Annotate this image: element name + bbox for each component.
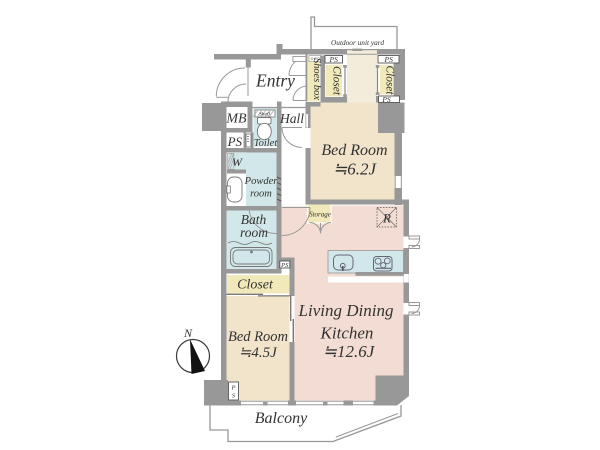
svg-text:≒12.6J: ≒12.6J <box>323 342 376 361</box>
svg-text:Kitchen: Kitchen <box>320 324 374 343</box>
svg-text:room: room <box>250 189 272 200</box>
svg-text:PS: PS <box>227 134 243 149</box>
svg-text:R: R <box>382 211 391 226</box>
svg-text:Bed Room: Bed Room <box>228 329 288 345</box>
svg-text:MB: MB <box>225 112 247 127</box>
svg-text:Storage: Storage <box>309 211 331 219</box>
svg-text:PS: PS <box>280 262 289 269</box>
svg-text:P: P <box>231 385 236 392</box>
svg-text:Living Dining: Living Dining <box>298 301 394 320</box>
svg-text:Hall: Hall <box>279 111 304 126</box>
svg-text:Entry: Entry <box>255 71 295 91</box>
svg-text:Shoes box: Shoes box <box>311 58 322 100</box>
svg-text:room: room <box>240 225 268 240</box>
svg-text:PS: PS <box>384 55 394 64</box>
svg-text:≒4.5J: ≒4.5J <box>239 345 278 361</box>
svg-text:Closet: Closet <box>237 278 274 293</box>
svg-text:Closet: Closet <box>331 66 343 96</box>
svg-text:Closet: Closet <box>384 66 396 96</box>
svg-text:Balcony: Balcony <box>255 410 308 427</box>
svg-text:PS: PS <box>329 55 339 64</box>
svg-text:PS: PS <box>381 95 391 104</box>
svg-text:≒6.2J: ≒6.2J <box>333 160 378 179</box>
svg-text:Toilet: Toilet <box>254 138 279 149</box>
svg-text:N: N <box>183 326 193 340</box>
svg-text:Bed Room: Bed Room <box>321 142 387 159</box>
svg-text:Powder: Powder <box>244 176 279 187</box>
svg-text:Shelf: Shelf <box>259 111 271 118</box>
svg-text:W: W <box>232 155 243 169</box>
svg-text:Outdoor unit yard: Outdoor unit yard <box>331 38 384 47</box>
